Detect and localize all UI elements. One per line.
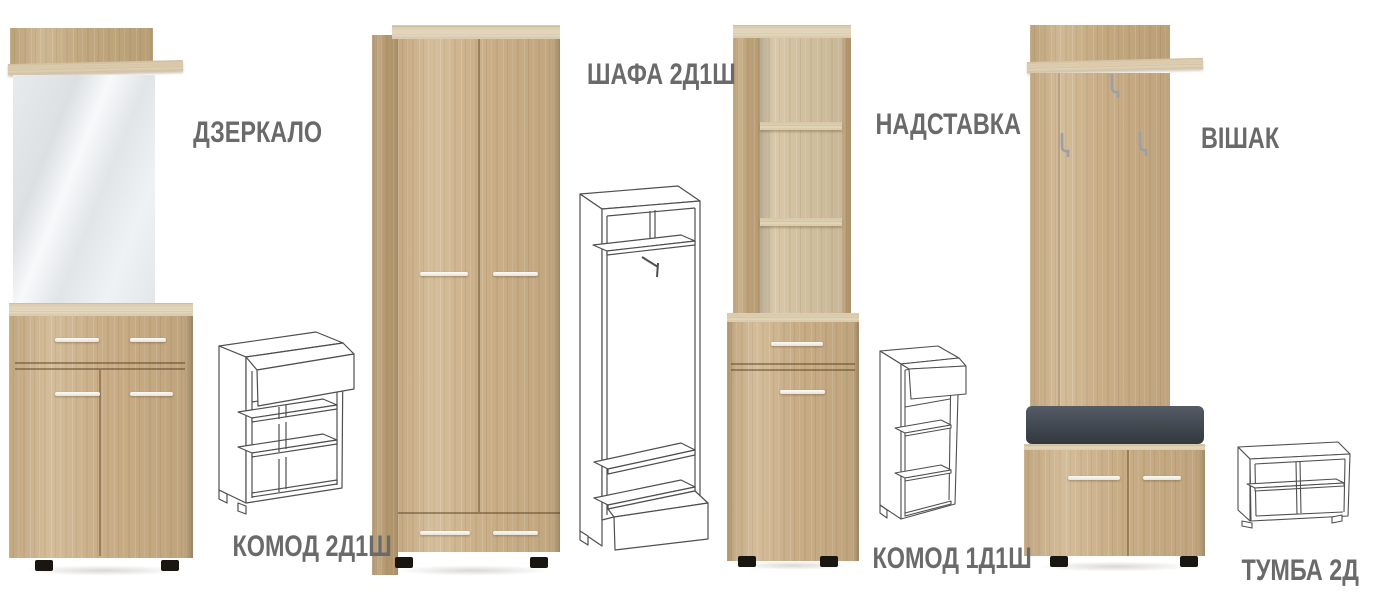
bench-foot bbox=[1180, 556, 1198, 567]
furniture-catalog: ДЗЕРКАЛО ШАФА 2Д1Ш НАДСТАВКА ВІШАК КОМОД… bbox=[0, 0, 1375, 600]
wireframe-komod-2d1sh bbox=[213, 327, 363, 525]
door-handle bbox=[1068, 476, 1120, 480]
cabinet-top-face bbox=[9, 303, 193, 316]
nadstavka-lower-komod bbox=[727, 313, 859, 573]
bench-foot bbox=[1050, 556, 1068, 567]
komod-foot bbox=[738, 556, 756, 567]
coat-hook-icon bbox=[1108, 74, 1124, 98]
coat-hook-icon bbox=[1058, 133, 1074, 157]
label-text: ТУМБА 2Д bbox=[1242, 556, 1359, 586]
open-shelf bbox=[760, 218, 842, 226]
nadstavka-right-panel bbox=[842, 38, 851, 313]
product-dzerkalo bbox=[8, 25, 208, 581]
wireframe-komod-1d1sh bbox=[875, 337, 971, 525]
wardrobe-front bbox=[398, 39, 560, 552]
compartment-shade bbox=[760, 38, 774, 313]
nadstavka-upper bbox=[733, 25, 851, 313]
wardrobe-side-edge bbox=[552, 39, 560, 552]
door-gap bbox=[731, 369, 855, 371]
panel-seam bbox=[1058, 73, 1060, 407]
label-komod-2d1sh: КОМОД 2Д1Ш bbox=[210, 532, 375, 562]
label-tumba-2d: ТУМБА 2Д bbox=[1225, 556, 1365, 586]
label-text: НАДСТАВКА bbox=[876, 110, 1021, 140]
label-text: ШАФА 2Д1Ш bbox=[587, 60, 736, 90]
label-dzerkalo: ДЗЕРКАЛО bbox=[175, 118, 325, 148]
label-vishak: ВІШАК bbox=[1185, 124, 1295, 154]
bench-cabinet bbox=[1024, 444, 1205, 556]
bench-front bbox=[1024, 450, 1205, 556]
mirror bbox=[13, 75, 155, 304]
mirror-cabinet bbox=[9, 303, 193, 593]
product-shafa bbox=[372, 25, 567, 577]
wardrobe-foot bbox=[530, 557, 548, 568]
vishak-panel bbox=[1030, 73, 1170, 407]
label-nadstavka: НАДСТАВКА bbox=[855, 110, 1005, 140]
door-handle bbox=[493, 272, 538, 276]
wireframe-tumba-2d bbox=[1234, 436, 1354, 532]
wardrobe-side-panel bbox=[372, 35, 398, 575]
door-handle bbox=[420, 272, 468, 276]
label-text: КОМОД 2Д1Ш bbox=[232, 532, 391, 562]
drawer-gap bbox=[398, 512, 560, 514]
door-handle bbox=[780, 390, 825, 394]
komod-side-edge bbox=[852, 322, 859, 561]
door-seam bbox=[1127, 450, 1129, 556]
product-nadstavka bbox=[727, 25, 859, 573]
product-vishak bbox=[1022, 25, 1207, 573]
label-text: КОМОД 1Д1Ш bbox=[872, 544, 1031, 574]
drawer-handle bbox=[130, 338, 166, 342]
open-shelf bbox=[760, 122, 842, 130]
drawer-gap bbox=[15, 362, 185, 364]
label-shafa-2d1sh: ШАФА 2Д1Ш bbox=[566, 60, 726, 90]
cabinet-front bbox=[9, 316, 193, 558]
label-text: ВІШАК bbox=[1201, 124, 1279, 154]
door-handle bbox=[130, 392, 173, 396]
drawer-gap bbox=[731, 363, 855, 365]
komod-foot bbox=[820, 556, 838, 567]
nadstavka-top-face bbox=[733, 25, 851, 38]
drawer-handle bbox=[420, 531, 470, 535]
door-seam bbox=[99, 370, 101, 556]
bench-side-edge bbox=[1198, 450, 1205, 556]
door-seam bbox=[478, 39, 480, 512]
wardrobe-foot bbox=[395, 557, 413, 568]
vishak-bench bbox=[1022, 406, 1207, 573]
cabinet-side-edge bbox=[184, 316, 193, 558]
wireframe-shafa-2d1sh bbox=[574, 179, 716, 557]
komod-top-face bbox=[727, 313, 859, 322]
bench-cushion bbox=[1026, 406, 1204, 444]
door-handle bbox=[1143, 476, 1181, 480]
door-handle bbox=[55, 392, 100, 396]
drawer-handle bbox=[55, 338, 99, 342]
cabinet-foot bbox=[161, 560, 179, 571]
wardrobe-top-face bbox=[392, 25, 560, 39]
drawer-handle bbox=[493, 531, 538, 535]
label-komod-1d1sh: КОМОД 1Д1Ш bbox=[850, 544, 1015, 574]
label-text: ДЗЕРКАЛО bbox=[193, 118, 322, 148]
komod-left-edge bbox=[727, 322, 735, 561]
nadstavka-left-panel bbox=[733, 38, 760, 313]
drawer-handle bbox=[771, 342, 823, 346]
coat-hook-icon bbox=[1136, 132, 1152, 156]
komod-front bbox=[727, 322, 859, 561]
cabinet-foot bbox=[35, 560, 53, 571]
